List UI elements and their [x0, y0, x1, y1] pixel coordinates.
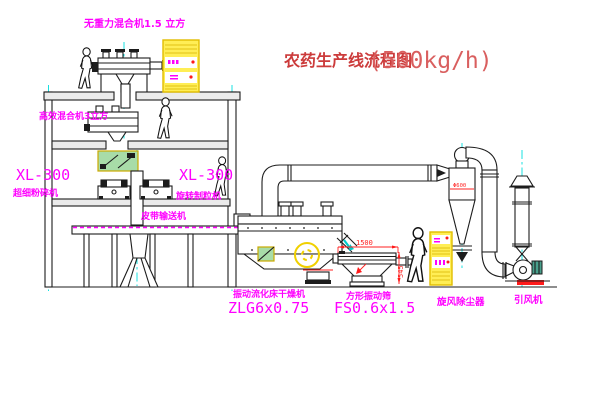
- belt-conveyor: [72, 226, 242, 287]
- title-capacity: (500kg/h): [368, 48, 493, 74]
- label-pulverizer-name: 超细粉碎机: [12, 187, 58, 199]
- person-figure: [158, 98, 172, 139]
- person-figure: [408, 228, 427, 282]
- label-high-efficiency-mixer: 高效混合机3立方: [39, 110, 108, 122]
- label-granulator-model: XL-300: [179, 166, 233, 184]
- control-cabinet-top: [163, 40, 199, 92]
- exhaust-duct: [262, 165, 450, 216]
- granulator-right: [140, 180, 172, 199]
- label-dryer-model: ZLG6x0.75: [228, 299, 309, 317]
- granulator-left: [98, 180, 130, 199]
- induced-draft-fan: [505, 260, 550, 285]
- label-pulverizer-model: XL-300: [16, 166, 70, 184]
- label-belt-conveyor: 皮带输送机: [140, 210, 186, 222]
- label-fan: 引风机: [514, 294, 543, 306]
- label-granulator-name: 旋转制粒机: [175, 190, 221, 202]
- exhaust-stack: [509, 176, 535, 261]
- label-screen-model: FS0.6x1.5: [334, 299, 415, 317]
- diagram-canvas: Φ600: [0, 0, 600, 403]
- label-gravity-mixer: 无重力混合机1.5 立方: [83, 17, 185, 30]
- label-cyclone: 旋风除尘器: [436, 296, 485, 308]
- label-cyclone-diameter: Φ600: [453, 183, 466, 189]
- cad-flow-diagram: Φ600: [0, 0, 600, 403]
- person-figure: [79, 48, 93, 89]
- label-screen-height: 545: [397, 265, 405, 278]
- label-screen-length: 1500: [356, 239, 373, 247]
- fluid-bed-dryer: [234, 202, 342, 284]
- control-cabinet-right: [430, 232, 452, 285]
